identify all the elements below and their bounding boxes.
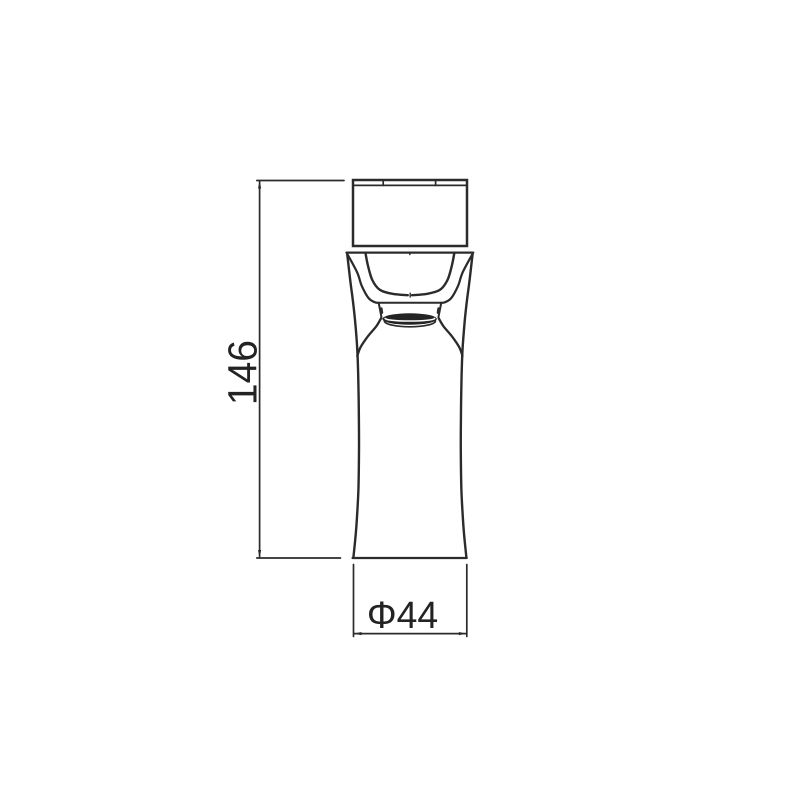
svg-text:Φ44: Φ44 [367, 595, 438, 637]
svg-text:146: 146 [220, 340, 266, 405]
